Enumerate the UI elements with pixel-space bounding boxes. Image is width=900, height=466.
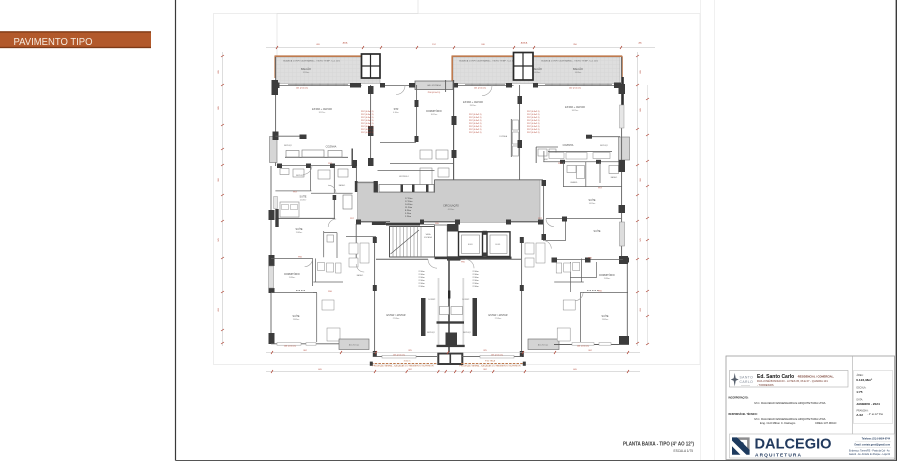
- svg-text:SUÍTE: SUÍTE: [593, 230, 600, 233]
- svg-text:DORMITÓRIO: DORMITÓRIO: [599, 274, 615, 277]
- svg-text:P07 (0.8x2.1): P07 (0.8x2.1): [361, 120, 374, 122]
- svg-text:17.20m: 17.20m: [405, 201, 412, 203]
- svg-text:32.27m²: 32.27m²: [319, 111, 326, 114]
- svg-text:ELEV.: ELEV.: [496, 244, 501, 246]
- svg-text:SUÍTE: SUÍTE: [295, 228, 302, 231]
- svg-text:34.25m²: 34.25m²: [572, 109, 579, 112]
- svg-text:P07 (0.8x2.1): P07 (0.8x2.1): [469, 120, 482, 122]
- svg-text:P07 (0.8x2.1): P07 (0.8x2.1): [361, 126, 374, 128]
- svg-text:4.10m²: 4.10m²: [393, 111, 399, 114]
- svg-text:17.20m: 17.20m: [405, 198, 412, 200]
- svg-text:J02 (2.4x1.1): J02 (2.4x1.1): [569, 88, 581, 90]
- svg-text:P07 (0.8x2.1): P07 (0.8x2.1): [361, 117, 374, 119]
- svg-text:6.123,48m²: 6.123,48m²: [856, 378, 872, 382]
- svg-text:ÁREA:: ÁREA:: [857, 374, 864, 377]
- svg-text:5.20m: 5.20m: [405, 213, 411, 215]
- svg-text:14.05m²: 14.05m²: [534, 71, 541, 74]
- svg-text:P07 (0.8x2.1): P07 (0.8x2.1): [527, 129, 540, 131]
- svg-text:27.05m²: 27.05m²: [393, 317, 400, 320]
- svg-text:- TORRES/RS: - TORRES/RS: [757, 383, 774, 387]
- svg-text:2.10m: 2.10m: [419, 271, 425, 273]
- svg-text:P07 (0.8x2.1): P07 (0.8x2.1): [361, 132, 374, 134]
- svg-text:12.05m²: 12.05m²: [300, 199, 307, 202]
- svg-text:SERVIÇO: SERVIÇO: [296, 175, 305, 177]
- svg-text:BALCÃO: BALCÃO: [301, 68, 311, 71]
- svg-text:DORMIT.: DORMIT.: [428, 299, 436, 301]
- svg-text:3.60 m: 3.60 m: [404, 361, 411, 363]
- svg-text:BWC: BWC: [544, 159, 549, 161]
- svg-text:BANHO: BANHO: [339, 184, 346, 187]
- svg-text:GUARDA CORPO ALVENARIA + VIDRO: GUARDA CORPO ALVENARIA + VIDRO TEMP. h=1…: [283, 60, 340, 63]
- svg-text:ELEV.: ELEV.: [468, 244, 473, 246]
- svg-text:GUARDA CORPO ALVENARIA + VIDRO: GUARDA CORPO ALVENARIA + VIDRO TEMP. h=1…: [459, 60, 516, 63]
- svg-text:HALL ENTRADA: HALL ENTRADA: [427, 84, 441, 87]
- svg-text:2.10m: 2.10m: [419, 283, 425, 285]
- svg-text:P07 (0.8x2.1): P07 (0.8x2.1): [527, 111, 540, 113]
- svg-text:SUÍTE: SUÍTE: [601, 315, 608, 318]
- svg-text:BANHO: BANHO: [357, 274, 364, 277]
- svg-text:2.10m: 2.10m: [473, 277, 479, 279]
- svg-text:VAGA: VAGA: [426, 233, 432, 236]
- svg-text:J04 (1.5x1.1): J04 (1.5x1.1): [284, 346, 296, 348]
- svg-text:41.30m²: 41.30m²: [448, 208, 455, 211]
- svg-text:ESCADA: ESCADA: [424, 236, 432, 239]
- svg-text:12.30m²: 12.30m²: [303, 71, 310, 74]
- svg-text:P07 (0.8x2.1): P07 (0.8x2.1): [361, 129, 374, 131]
- svg-text:J05 (2.0x1.1): J05 (2.0x1.1): [491, 355, 503, 357]
- svg-text:P10 TELA: P10 TELA: [485, 360, 495, 363]
- svg-text:J04 (1.5x1.1): J04 (1.5x1.1): [577, 346, 589, 348]
- svg-text:P07 (0.8x2.1): P07 (0.8x2.1): [469, 117, 482, 119]
- svg-text:Área Serviço: Área Serviço: [538, 344, 548, 347]
- svg-text:P07 (0.8x2.1): P07 (0.8x2.1): [469, 114, 482, 116]
- svg-text:COZINHA: COZINHA: [326, 146, 337, 149]
- svg-text:14.20m: 14.20m: [405, 204, 412, 206]
- svg-text:SERVIÇO: SERVIÇO: [463, 332, 472, 334]
- svg-text:SUÍTE: SUÍTE: [299, 196, 306, 199]
- svg-text:P07 (0.8x2.1): P07 (0.8x2.1): [469, 132, 482, 134]
- svg-text:1:75: 1:75: [856, 390, 862, 394]
- svg-text:GUARDA CORPO ALVENARIA + VIDRO: GUARDA CORPO ALVENARIA + VIDRO TEMP. h=1…: [541, 60, 598, 63]
- svg-text:P07 (0.8x2.1): P07 (0.8x2.1): [527, 120, 540, 122]
- svg-text:ESTAR + JANTAR: ESTAR + JANTAR: [463, 101, 483, 104]
- svg-text:J05 (2.0x1.1): J05 (2.0x1.1): [393, 355, 405, 357]
- svg-text:J01 (2.0x1.1): J01 (2.0x1.1): [474, 88, 486, 90]
- svg-text:P07 (0.8x2.1): P07 (0.8x2.1): [527, 114, 540, 116]
- svg-text:8.20m: 8.20m: [405, 210, 411, 212]
- svg-text:14.05m²: 14.05m²: [575, 71, 582, 74]
- svg-text:STR: STR: [394, 108, 399, 111]
- svg-text:P07 (0.8x2.1): P07 (0.8x2.1): [469, 123, 482, 125]
- svg-text:PROJEÇÃO BEIRAL, SACADAS DO PA: PROJEÇÃO BEIRAL, SACADAS DO PAVIMENTO SU…: [459, 364, 521, 367]
- svg-text:SERVIÇO: SERVIÇO: [600, 145, 609, 147]
- svg-text:Email: contato.geral@gmail.com: Email: contato.geral@gmail.com: [854, 444, 890, 447]
- svg-text:P07 (0.8x2.1): P07 (0.8x2.1): [527, 123, 540, 125]
- svg-text:JANEIRO - 2024: JANEIRO - 2024: [856, 402, 880, 406]
- svg-text:RESPONSÁVEL TÉCNICO:: RESPONSÁVEL TÉCNICO:: [729, 413, 758, 416]
- svg-text:A A A A: A A A A: [521, 42, 528, 45]
- svg-text:LAVAND.: LAVAND.: [570, 181, 578, 184]
- svg-text:P07 (0.8x2.1): P07 (0.8x2.1): [527, 126, 540, 128]
- svg-text:SANTO: SANTO: [740, 375, 754, 379]
- svg-text:2.10m: 2.10m: [473, 280, 479, 282]
- svg-text:2.10m: 2.10m: [473, 271, 479, 273]
- svg-text:2.10m: 2.10m: [419, 277, 425, 279]
- svg-text:P07 (0.8x2.1): P07 (0.8x2.1): [361, 123, 374, 125]
- svg-text:ESTAR + JANTAR: ESTAR + JANTAR: [565, 106, 585, 109]
- svg-text:CREA 137.960-D: CREA 137.960-D: [815, 421, 836, 425]
- svg-text:CIRCULAÇÃO: CIRCULAÇÃO: [443, 205, 459, 208]
- svg-text:P07 (0.8x2.1): P07 (0.8x2.1): [361, 111, 374, 113]
- svg-text:COZINHA: COZINHA: [563, 144, 574, 147]
- svg-text:28.11m²: 28.11m²: [470, 104, 477, 107]
- svg-text:Telefone: (51) 9 9654-0744: Telefone: (51) 9 9654-0744: [862, 438, 891, 441]
- svg-text:PAVIMENTO TIPO: PAVIMENTO TIPO: [14, 37, 93, 48]
- svg-text:DALCEGIO: DALCEGIO: [755, 436, 832, 453]
- svg-text:14.20m²: 14.20m²: [589, 202, 596, 205]
- svg-text:ESTAR / JANTAR: ESTAR / JANTAR: [387, 314, 406, 317]
- svg-text:ARQUITETURA: ARQUITETURA: [755, 452, 802, 458]
- svg-text:ESTAR / JANTAR: ESTAR / JANTAR: [489, 314, 508, 317]
- svg-text:11.30m²: 11.30m²: [289, 276, 296, 279]
- svg-text:A A A: A A A: [343, 42, 348, 45]
- svg-text:SERVIÇO: SERVIÇO: [427, 332, 436, 334]
- svg-text:INCORPORAÇÃO:: INCORPORAÇÃO:: [729, 397, 749, 400]
- svg-text:SUÍTE: SUÍTE: [588, 199, 595, 202]
- svg-text:2.10m: 2.10m: [473, 274, 479, 276]
- svg-text:PROJEÇÃO BEIRAL, SACADAS DO PA: PROJEÇÃO BEIRAL, SACADAS DO PAVIMENTO SU…: [372, 364, 434, 367]
- svg-text:BANHO: BANHO: [611, 176, 618, 179]
- svg-text:-RESIDENCIAL / COMERCIAL,: -RESIDENCIAL / COMERCIAL,: [797, 375, 834, 379]
- svg-text:P07 (0.8x2.1): P07 (0.8x2.1): [469, 129, 482, 131]
- svg-text:11.30m²: 11.30m²: [604, 277, 611, 280]
- svg-text:DATA:: DATA:: [857, 398, 864, 401]
- svg-text:P04 (0.9x2.1): P04 (0.9x2.1): [428, 92, 441, 94]
- svg-text:DORMIT.: DORMIT.: [462, 299, 470, 301]
- svg-text:P07 (0.8x2.1): P07 (0.8x2.1): [527, 132, 540, 134]
- svg-text:ESTAR + JANTAR: ESTAR + JANTAR: [312, 108, 332, 111]
- svg-text:Gaivotí - Av. Alcindo do Parqu: Gaivotí - Av. Alcindo do Parque - Loja 0…: [849, 453, 891, 456]
- svg-text:P07 (0.8x2.1): P07 (0.8x2.1): [527, 117, 540, 119]
- svg-text:DORMITÓRIO: DORMITÓRIO: [284, 273, 300, 276]
- svg-text:Endereço: Torres/RS - Praia da: Endereço: Torres/RS - Praia da Cal - Av.: [849, 450, 890, 453]
- svg-text:PLANTA BAIXA - TIPO (4° AO 12°: PLANTA BAIXA - TIPO (4° AO 12°): [623, 441, 694, 447]
- svg-text:13.65m²: 13.65m²: [602, 318, 609, 321]
- svg-text:2.10m: 2.10m: [419, 286, 425, 288]
- svg-text:Eng. Civil Milton C. Dalcegio: Eng. Civil Milton C. Dalcegio: [760, 421, 796, 425]
- svg-text:SUÍTE: SUÍTE: [292, 315, 299, 318]
- svg-text:Área Serviço: Área Serviço: [349, 344, 359, 347]
- svg-text:SERVIÇO: SERVIÇO: [284, 145, 293, 147]
- svg-text:2.10m: 2.10m: [419, 280, 425, 282]
- svg-text:2.10m: 2.10m: [473, 283, 479, 285]
- svg-text:2.10m: 2.10m: [473, 286, 479, 288]
- svg-text:13.65m²: 13.65m²: [293, 318, 300, 321]
- svg-text:27.05m²: 27.05m²: [495, 317, 502, 320]
- svg-text:10.15m²: 10.15m²: [431, 113, 438, 116]
- svg-text:Ed. Santo Carlo: Ed. Santo Carlo: [757, 374, 794, 380]
- svg-text:COZINHA: COZINHA: [499, 135, 508, 138]
- svg-text:2.10m: 2.10m: [419, 274, 425, 276]
- svg-text:J01 (2.0x1.1): J01 (2.0x1.1): [296, 88, 308, 90]
- svg-text:2.20m: 2.20m: [405, 216, 411, 218]
- svg-text:ESCALA 1/75: ESCALA 1/75: [674, 449, 694, 453]
- svg-text:P07 (0.8x2.1): P07 (0.8x2.1): [361, 114, 374, 116]
- svg-text:P07 (0.8x2.1): P07 (0.8x2.1): [469, 126, 482, 128]
- svg-text:CARLO: CARLO: [740, 380, 754, 384]
- svg-text:M.C. DALCEGIO ENGENHARIA E ARQ: M.C. DALCEGIO ENGENHARIA E ARQUITETURA L…: [754, 401, 825, 405]
- svg-text:BALCÃO: BALCÃO: [573, 68, 583, 71]
- svg-text:11.20m: 11.20m: [405, 207, 412, 209]
- svg-text:VESTÍBULO: VESTÍBULO: [399, 175, 410, 178]
- svg-text:DORMITÓRIO: DORMITÓRIO: [426, 110, 442, 113]
- svg-text:11.65m²: 11.65m²: [296, 231, 303, 234]
- svg-text:- 4° ao 12° Pav: - 4° ao 12° Pav: [868, 414, 884, 416]
- svg-text:A-02: A-02: [856, 413, 863, 417]
